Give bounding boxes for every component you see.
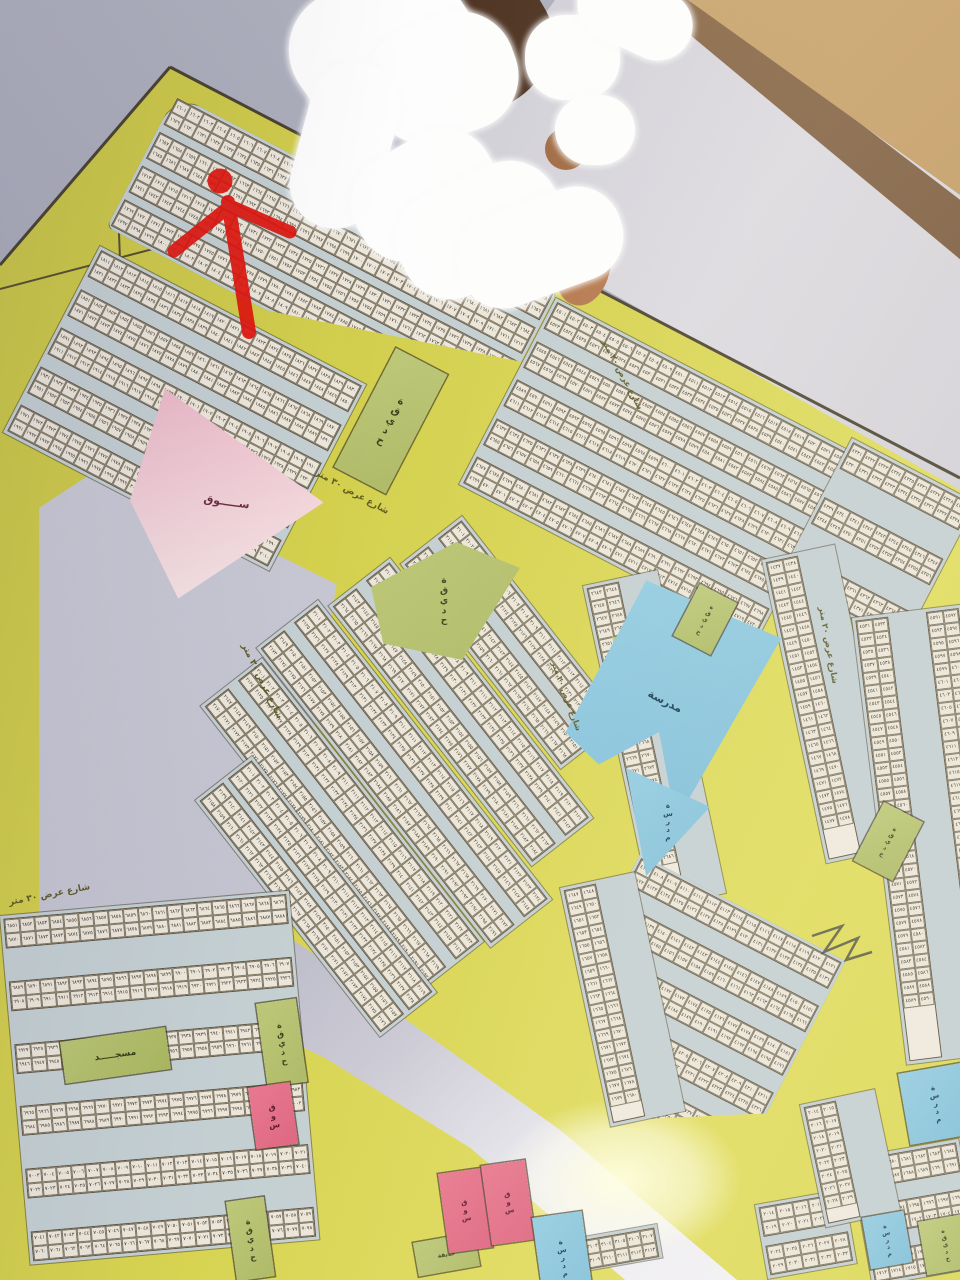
plot-cell: ٦٩٧٠ <box>95 1100 111 1115</box>
plot-cell: ٦٩١٥ <box>115 986 131 1001</box>
plot-cell: ٦٨٥٦ <box>78 912 94 927</box>
plot-cell: ٧٠١١ <box>145 1158 161 1173</box>
plot-cell: ١٦٩٨ <box>949 1190 960 1206</box>
area-label: سوق <box>460 1198 471 1223</box>
plot-cell: ٦٩٦٧ <box>50 1103 66 1118</box>
plot-cell: ٦٨٥٧ <box>93 911 109 926</box>
plot-cell: ٤٦٢٧ <box>955 843 960 858</box>
plot-cell: ٦٨٩٤ <box>84 974 100 989</box>
plot-cell: ٦٨٥٤ <box>49 914 65 929</box>
area-label: حديقة <box>939 1227 952 1263</box>
school-area: مدرسة <box>862 1211 912 1270</box>
plot-cell: ٧٠٥٧ <box>268 1210 284 1225</box>
plot-cell: ٧٠٠٨ <box>100 1162 116 1177</box>
area-label: حديقة <box>694 602 716 636</box>
plot-cell: ٧٠٢٥ <box>72 1179 88 1194</box>
plot-cell: ٧٠٢١ <box>292 1145 308 1160</box>
plot-cell: ٦٩٠٨ <box>11 995 27 1010</box>
plot-cell: ٦٨٩٢ <box>54 977 70 992</box>
plot-cell: ٦٩٦٥ <box>21 1106 37 1121</box>
plot-cell: ٧٠١٧ <box>233 1150 249 1165</box>
area-label: حديقة <box>243 1216 258 1262</box>
plot-cell: ٦٨٥٣ <box>34 916 50 931</box>
plot-cell: ٦٩٠٣ <box>217 963 233 978</box>
plot-cell: ٧٠٢٧ <box>101 1176 117 1191</box>
plot-cell: ٦٩١٩ <box>174 981 190 996</box>
area-label: سوق <box>503 1190 514 1215</box>
plot-cell: ٧٠٤٤ <box>76 1227 92 1242</box>
plot-cell: ٧٠٤٨ <box>135 1222 151 1237</box>
plot-cell: ٦٩٧٨ <box>213 1089 229 1104</box>
plot-cell: ٧٠٢٦ <box>87 1177 103 1192</box>
plot-cell: ٤٦٠٦ <box>953 699 960 714</box>
plot-cell: ٦٩٥٩ <box>209 1041 225 1056</box>
plot-cell: ٧٠٦٩ <box>166 1233 182 1248</box>
plot-cell: ٧٠٦٦ <box>122 1237 138 1252</box>
plot-cell: ٦٩٧٦ <box>183 1092 199 1107</box>
plot-cell: ٦٨٩٠ <box>25 980 41 995</box>
plot-cell: ٧٠٣٢ <box>175 1170 191 1185</box>
plot-cell: ٦٨٦١ <box>152 905 168 920</box>
plot-cell: ٦٩٢٢ <box>218 977 234 992</box>
plot-cell: ٦٨٦٢ <box>167 904 183 919</box>
plot-cell: ٦٩٨٤ <box>22 1120 38 1135</box>
plot-cell: ٦٩٧٩ <box>228 1088 244 1103</box>
plot-cell: ٤٦١٠ <box>957 725 960 740</box>
plot-cell: ٧٠٠٥ <box>56 1166 72 1181</box>
plot-cell: ٧٠٧٢ <box>210 1230 226 1245</box>
area-label: حديقة <box>274 1020 289 1066</box>
plot-cell: ٦٩٩٣ <box>155 1108 171 1123</box>
plot-cell: ٦٩٨٦ <box>52 1117 68 1132</box>
plot-cell: ٦٩٩٥ <box>185 1106 201 1121</box>
plot-cell: ٦٨٧٤ <box>65 927 81 942</box>
area-label: مدرسة <box>664 802 672 842</box>
plot-cell: ٧٠٢٣ <box>42 1181 58 1196</box>
plot-cell: ٧٠٠٤ <box>41 1167 57 1182</box>
plot-cell: ٧٠٤١ <box>32 1231 48 1246</box>
whiteout-blob <box>555 95 635 165</box>
plot-cell: ٦٨٩٦ <box>113 972 129 987</box>
plot-cell: ٤٦٢٣ <box>952 817 960 832</box>
plot-cell: ٦٩٢١ <box>203 978 219 993</box>
area-label: مدرسة <box>646 687 685 716</box>
plot-cell: ٧٠٥٨ <box>283 1209 299 1224</box>
area-label: حديقة <box>877 824 899 858</box>
plot-cell: ٦٨٥٩ <box>123 908 139 923</box>
plot-cell: ٦٩٠١ <box>187 965 203 980</box>
plot-cell: ٦٩٠٥ <box>246 960 262 975</box>
map-photo: ١٦٠١١٦٠٢١٦٠٣١٦٠٤١٦٠٥١٦٠٦١٦٠٧١٦٠٨١٦٠٩١٦١٠… <box>0 0 960 1280</box>
plot-cell: ٧٠٣١ <box>161 1171 177 1186</box>
plot-cell: ٧٠١٥ <box>204 1153 220 1168</box>
plot-cell: ٧٠٣٣ <box>190 1168 206 1183</box>
plot-cell: ٦٨٨٢ <box>183 917 199 932</box>
plot-cell: ٤٦٠٠ <box>949 661 960 676</box>
plot-cell: ٧٠١٠ <box>130 1160 146 1175</box>
plot-cell: ٦٨٧٥ <box>79 926 95 941</box>
area-label: مدرسة <box>928 1084 943 1125</box>
plot-cell: ٧٠٦٨ <box>151 1235 167 1250</box>
plot-cell: ٦٩٠٠ <box>172 967 188 982</box>
plot-cell: ٦٨٩١ <box>39 978 55 993</box>
plot-cell: ٧٠٧٨ <box>299 1222 315 1237</box>
plot-cell: ٧٠٣٩ <box>279 1161 295 1176</box>
plot-cell: ٦٩٠٦ <box>261 959 277 974</box>
plot-cell: ٦٨٧٣ <box>50 928 66 943</box>
plot-cell: ٧٠١٢ <box>159 1157 175 1172</box>
plot-cell: ٦٩٠٢ <box>202 964 218 979</box>
plot-cell: ٦٨٧٦ <box>94 925 110 940</box>
plot-cell: ٧٠٣٤ <box>205 1167 221 1182</box>
plot-cell: ٦٩٢٤ <box>248 974 264 989</box>
plot-cell: ٦٩٠٧ <box>276 958 292 973</box>
plot-cell: ٦٩٤١ <box>222 1025 238 1040</box>
plot-cell: ٧٠٠٧ <box>85 1163 101 1178</box>
plot-cell: ٧٠٣٨ <box>264 1162 280 1177</box>
plot-cell: ١٦٨٠ <box>623 1088 641 1104</box>
plot-cell: ٦٨٦٥ <box>211 900 227 915</box>
plot-cell: ٦٩١٦ <box>129 984 145 999</box>
plot-cell: ٦٩٤٠ <box>207 1027 223 1042</box>
plot-cell: ٦٨٧٧ <box>109 923 125 938</box>
plot-strip: ٧٠٠٣٧٠٠٤٧٠٠٥٧٠٠٦٧٠٠٧٧٠٠٨٧٠٠٩٧٠١٠٧٠١١٧٠١٢… <box>25 1144 311 1199</box>
plot-cell: ٦٩٤٧ <box>31 1056 47 1071</box>
plot-cell: ٧٠٦٠ <box>33 1245 49 1260</box>
plot-cell: ٦٩٨٥ <box>37 1119 53 1134</box>
plot-cell: ٦٨٨٠ <box>153 919 169 934</box>
plot-cell: ٦٩٧٧ <box>198 1090 214 1105</box>
plot-cell: ٤٦٠٢ <box>950 674 960 689</box>
plot-cell: ٦٩٦٨ <box>65 1102 81 1117</box>
plot-cell: ٦٩٩٧ <box>214 1103 230 1118</box>
area-label: حديقة <box>373 394 408 448</box>
plot-cell: ٦٩١٧ <box>144 983 160 998</box>
plot-cell: ٦٨٦٤ <box>197 902 213 917</box>
plot-cell: ٤٥٩٠ <box>918 992 935 1007</box>
plot-cell: ٧٠٧٦ <box>269 1224 285 1239</box>
plot-cell: ٧٠٦٢ <box>62 1242 78 1257</box>
plot-cell: ٧٠٤٥ <box>91 1226 107 1241</box>
plot-cell: ٦٩٩٢ <box>140 1110 156 1125</box>
plot-cell: ٦٩٩٠ <box>111 1112 127 1127</box>
plot-cell: ٧٠٣٦ <box>234 1164 250 1179</box>
plot-cell: ٦٨٩٧ <box>128 971 144 986</box>
plot-cell: ٦٨٨٥ <box>227 913 243 928</box>
plot-cell: ٧٠٣٠ <box>146 1172 162 1187</box>
plot-cell: ٦٨٧٠ <box>6 932 22 947</box>
plot-cell: ٦٩٤٨ <box>46 1055 62 1070</box>
plot-cell: ٧٠١٤ <box>189 1154 205 1169</box>
plot-cell: ٦٨٥٢ <box>19 917 35 932</box>
plot-cell: ٦٨٧٨ <box>124 922 140 937</box>
area-label: مدرسة <box>556 1238 569 1279</box>
plot-cell: ٧٠٢٩ <box>131 1173 147 1188</box>
plot-cell: ٦٩٨٧ <box>66 1116 82 1131</box>
plot-cell: ٦٩٢٦ <box>277 972 293 987</box>
plot-cell: ٧٠١٣ <box>174 1156 190 1171</box>
plot-cell: ٧٠٦٧ <box>136 1236 152 1251</box>
plot-cell: ٧٠٢٤ <box>57 1180 73 1195</box>
plot-cell: ٦٨٨٩ <box>10 981 26 996</box>
plot-cell: ٦٨٨٨ <box>272 909 288 924</box>
plot-cell: ٧٠٦٤ <box>92 1240 108 1255</box>
plot-cell: ٢٠٢٩ <box>839 1191 857 1207</box>
area-label: سوق <box>267 1102 280 1130</box>
plot-cell: ٧٠٦١ <box>48 1244 64 1259</box>
plot-cell: ٦٨٧٢ <box>35 930 51 945</box>
plot-cell: ٦٨٩٥ <box>99 973 115 988</box>
plot-cell: ١٤٧٨ <box>836 811 854 827</box>
plot-cell: ٤٦٠٤ <box>952 686 960 701</box>
plot-cell: ٦٩٣٩ <box>193 1028 209 1043</box>
plot-cell: ٦٩٩٤ <box>170 1107 186 1122</box>
plot-cell: ٦٨٥٨ <box>108 909 124 924</box>
plot-cell: ٦٩١٣ <box>85 988 101 1003</box>
plot-cell: ٧٠٠٦ <box>71 1165 87 1180</box>
plot-cell: ٧٠٠٩ <box>115 1161 131 1176</box>
plot-cell: ٦٩١٨ <box>159 982 175 997</box>
plot-cell: ٦٩٤٦ <box>16 1057 32 1072</box>
plot-cell: ٤٦٢١ <box>951 804 960 819</box>
plot-cell: ٦٨٦٨ <box>256 896 272 911</box>
plot-cell: ٢٠٣٣ <box>833 1246 852 1263</box>
plot-cell: ٦٩٦٠ <box>223 1039 239 1054</box>
area-label: حديقة <box>439 576 449 626</box>
plot-cell: ٤٦٢٥ <box>954 830 960 845</box>
area-label: ســـــوق <box>203 492 251 511</box>
plot-cell: ٧٠٤٢ <box>46 1230 62 1245</box>
market-area: سوق <box>248 1082 298 1149</box>
plot-cell: ٦٨٩٣ <box>69 976 85 991</box>
plot-cell: ٦٩٦٩ <box>80 1101 96 1116</box>
plot-cell: ٦٩٧٤ <box>154 1094 170 1109</box>
plot-cell: ٦٩٦٦ <box>36 1105 52 1120</box>
plot-cell: ٦٩٠٩ <box>26 994 42 1009</box>
plot-cell: ٧٠٤٩ <box>150 1221 166 1236</box>
plot-cell: ٦٨٥٥ <box>63 913 79 928</box>
plot-cell: ٦٨٦٠ <box>137 907 153 922</box>
plot-cell: ٧٠٥٢ <box>194 1217 210 1232</box>
plot-cell: ٦٩٩١ <box>125 1111 141 1126</box>
plot-cell: ٧٠٥١ <box>180 1218 196 1233</box>
plot-cell: ٦٨٦٦ <box>226 899 242 914</box>
plot-cell: ٧٠٤٣ <box>61 1229 77 1244</box>
plot-cell: ١٦٩١ <box>943 1157 960 1173</box>
plot-cell: ٦٨٨٣ <box>198 915 214 930</box>
plot-cell: ٤٦٠٨ <box>955 712 960 727</box>
plot-cell: ٦٩١١ <box>55 991 71 1006</box>
plot-cell: ٦٩٧٢ <box>124 1097 140 1112</box>
plot-cell: ٧٠٤٠ <box>294 1159 310 1174</box>
plot-cell: ٦٩٦١ <box>238 1038 254 1053</box>
plot-cell: ٦٩١٠ <box>41 992 57 1007</box>
area-label: مسجـــــد <box>94 1048 137 1064</box>
plot-cell: ٧٠٢٠ <box>278 1147 294 1162</box>
plot-cell: ٣١١٣ <box>642 1242 658 1258</box>
plot-cell: ٧٠٧١ <box>196 1231 212 1246</box>
plot-cell: ٦٨٨٤ <box>213 914 229 929</box>
plot-cell: ٦٩٢٨ <box>30 1042 46 1057</box>
plot-cell: ٦٨٧١ <box>20 931 36 946</box>
plot-cell: ٧٠٧٠ <box>181 1232 197 1247</box>
plot-cell: ٦٩٢٠ <box>188 979 204 994</box>
plot-cell: ٦٩١٢ <box>70 990 86 1005</box>
plot-cell: ٧٠٧٧ <box>284 1223 300 1238</box>
plot-cell: ٦٨٦٣ <box>182 903 198 918</box>
plot-cell: ٦٨٨١ <box>168 918 184 933</box>
plot-cell: ٦٩٢٧ <box>15 1043 31 1058</box>
plot-cell: ٧٠٥٩ <box>298 1208 314 1223</box>
plot-cell: ٤٥٨٩ <box>902 994 919 1009</box>
plot-cell: ٦٩٤٢ <box>237 1024 253 1039</box>
plot-cell: ٦٩٧١ <box>109 1098 125 1113</box>
plot-cell: ٦٨٦٩ <box>270 895 286 910</box>
plot-cell: ٦٨٩٨ <box>143 969 159 984</box>
plot-cell: ٦٩٥٨ <box>194 1042 210 1057</box>
plot-cell: ٦٩٣٨ <box>178 1029 194 1044</box>
plot-cell: ٧٠٢٨ <box>116 1175 132 1190</box>
plot-cell: ٦٩٢٣ <box>233 975 249 990</box>
plot-cell: ٦٩٢٥ <box>262 973 278 988</box>
plot-cell: ٦٩٨٩ <box>96 1113 112 1128</box>
plot-cell: ٧٠٦٣ <box>77 1241 93 1256</box>
plot-cell: ٧٠١٦ <box>218 1152 234 1167</box>
plot-cell: ٧٠٤٧ <box>120 1223 136 1238</box>
plot-cell: ٧٠٥٠ <box>165 1219 181 1234</box>
plot-cell: ٧٠٣٧ <box>249 1163 265 1178</box>
plot-cell: ٦٨٨٦ <box>242 912 258 927</box>
plot-cell: ٦٨٥١ <box>4 918 20 933</box>
plot-cell: ٦٩٧٥ <box>169 1093 185 1108</box>
plot-cell: ٦٩٥٧ <box>179 1043 195 1058</box>
plot-cell: ٧٠٠٣ <box>26 1169 42 1184</box>
plot-cell: ٧٠٣٥ <box>220 1166 236 1181</box>
plot-cell: ٦٨٧٩ <box>139 921 155 936</box>
plot-strip: ٦٨٨٩٦٨٩٠٦٨٩١٦٨٩٢٦٨٩٣٦٨٩٤٦٨٩٥٦٨٩٦٦٨٩٧٦٨٩٨… <box>9 957 295 1012</box>
plot-cell: ٧٠٤٦ <box>106 1225 122 1240</box>
plot-cell: ٦٩٩٨ <box>229 1102 245 1117</box>
plot-cell: ٦٨٩٩ <box>158 968 174 983</box>
plot-cell: ٦٩١٤ <box>100 987 116 1002</box>
plot-cell: ٦٩٧٣ <box>139 1096 155 1111</box>
plot-cell: ٧٠٥٣ <box>209 1216 225 1231</box>
plot-cell: ٦٨٦٧ <box>241 898 257 913</box>
area-label: مدرسة <box>881 1222 894 1258</box>
plot-cell: ٧٠١٨ <box>248 1149 264 1164</box>
plot-cell: ٦٨٨٧ <box>257 910 273 925</box>
plot-cell: ٧٠١٩ <box>263 1148 279 1163</box>
plot-cell: ٦٩٠٤ <box>232 961 248 976</box>
plot-cell: ٧٠٦٥ <box>107 1239 123 1254</box>
plot-cell: ٦٩٢٩ <box>45 1041 61 1056</box>
plot-cell: ٦٩٨٨ <box>81 1115 97 1130</box>
plot-cell: ٧٠٢٢ <box>27 1183 43 1198</box>
plot-cell: ٦٩٩٦ <box>199 1104 215 1119</box>
plot-cell: ٤٦١٩ <box>949 792 960 807</box>
